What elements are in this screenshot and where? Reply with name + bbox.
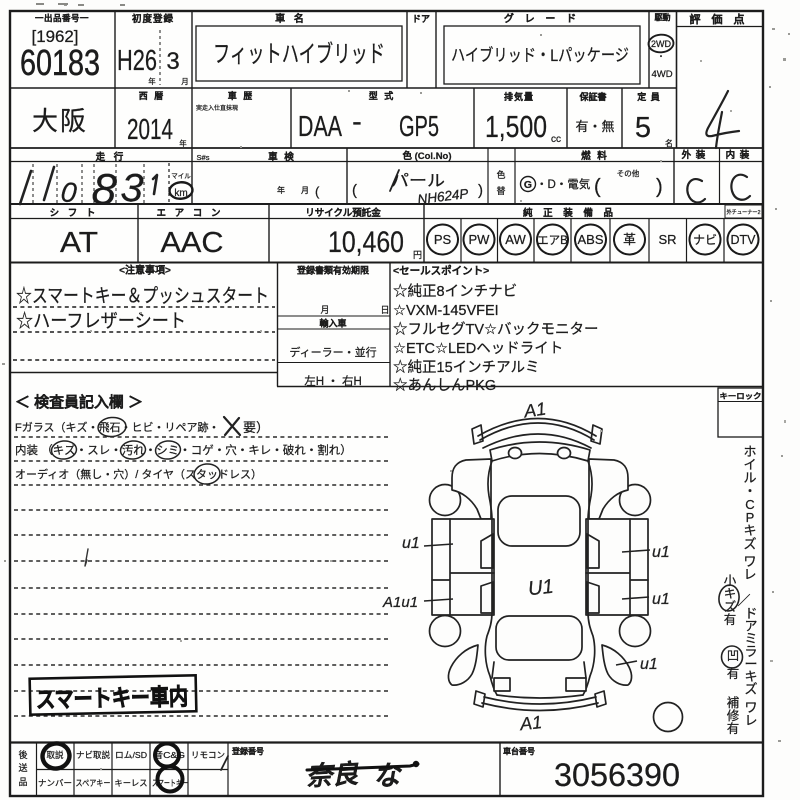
svg-text:実走入仕直抹現: 実走入仕直抹現	[196, 104, 238, 112]
svg-text:DTV: DTV	[731, 233, 757, 247]
svg-text:型 式: 型 式	[369, 90, 396, 101]
svg-text:取説: 取説	[46, 750, 64, 760]
svg-text:スペアキー: スペアキー	[76, 778, 111, 788]
svg-text:名: 名	[665, 138, 673, 148]
svg-text:☆フルセグTV☆バックモニター: ☆フルセグTV☆バックモニター	[393, 321, 599, 338]
svg-text:燃 料: 燃 料	[581, 150, 609, 162]
svg-text:日: 日	[380, 305, 389, 315]
svg-text:定 員: 定 員	[636, 91, 661, 102]
svg-text:S#s: S#s	[197, 153, 210, 162]
svg-text:3056390: 3056390	[554, 757, 680, 793]
svg-text:シ フ ト: シ フ ト	[50, 208, 99, 219]
svg-text:車 歴: 車 歴	[228, 90, 255, 101]
svg-text:Fガラス（キズ・飛石・ヒビ・リペア跡・: Fガラス（キズ・飛石・ヒビ・リペア跡・	[15, 420, 220, 434]
svg-text:ズ: ズ	[743, 536, 756, 551]
svg-text:ナンバー: ナンバー	[38, 778, 72, 788]
svg-text:リモコン: リモコン	[191, 750, 225, 760]
svg-text:☆VXM-145VFEI: ☆VXM-145VFEI	[393, 303, 499, 319]
svg-text:＜ 検査員記入欄 ＞: ＜ 検査員記入欄 ＞	[15, 393, 143, 411]
svg-text:G: G	[524, 179, 532, 191]
svg-text:ナビ取説: ナビ取説	[76, 750, 110, 760]
svg-text:後: 後	[18, 749, 27, 760]
svg-text:☆純正8インチナビ: ☆純正8インチナビ	[393, 283, 517, 300]
svg-text:10,460: 10,460	[328, 226, 404, 259]
svg-text:u1: u1	[640, 656, 658, 673]
svg-text:円: 円	[413, 250, 422, 260]
svg-text:有: 有	[727, 722, 740, 736]
svg-text:AW: AW	[505, 232, 526, 247]
svg-text:な: な	[372, 760, 404, 792]
svg-text:5: 5	[635, 112, 651, 144]
svg-text:レ: レ	[743, 567, 756, 582]
svg-text:-: -	[352, 106, 362, 138]
svg-text:外 装: 外 装	[681, 149, 707, 161]
svg-text:有: 有	[727, 667, 740, 681]
svg-text:☆ハーフレザーシート: ☆ハーフレザーシート	[16, 310, 186, 332]
svg-text:A1: A1	[518, 712, 543, 734]
svg-text:H26: H26	[117, 45, 157, 77]
svg-text:革: 革	[623, 232, 636, 247]
svg-text:3: 3	[119, 166, 144, 211]
svg-text:オーディオ（無し・穴）/ タイヤ（スタッドレス）: オーディオ（無し・穴）/ タイヤ（スタッドレス）	[15, 467, 262, 481]
svg-text:☆純正15インチアルミ: ☆純正15インチアルミ	[393, 359, 539, 376]
svg-text:AT: AT	[60, 227, 98, 259]
svg-text:送: 送	[18, 762, 27, 773]
svg-text:u1: u1	[652, 591, 670, 608]
svg-text:保証書: 保証書	[578, 91, 606, 102]
svg-text:レ: レ	[744, 713, 757, 728]
svg-text:フィットハイブリッド: フィットハイブリッド	[213, 41, 385, 68]
svg-text:☆スマートキー＆プッシュスタート: ☆スマートキー＆プッシュスタート	[16, 285, 269, 307]
svg-text:U1: U1	[527, 576, 555, 601]
svg-text:PW: PW	[469, 232, 491, 247]
svg-text:奈良: 奈良	[305, 759, 359, 792]
svg-text:(: (	[352, 182, 357, 199]
svg-text:・: ・	[657, 52, 665, 61]
svg-text:cc: cc	[551, 134, 561, 145]
svg-text:A1: A1	[522, 399, 548, 422]
svg-text:ハイブリッド・Lパッケージ: ハイブリッド・Lパッケージ	[451, 45, 629, 65]
svg-text:・D・電気: ・D・電気	[536, 177, 591, 191]
svg-text:車 検: 車 検	[268, 151, 296, 163]
svg-text:月: 月	[320, 305, 329, 315]
svg-text:ズ: ズ	[724, 599, 737, 614]
svg-text:ナビ: ナビ	[693, 233, 717, 247]
svg-text:リサイクル預託金: リサイクル預託金	[305, 207, 381, 219]
svg-text:外チューナー2: 外チューナー2	[727, 208, 761, 216]
svg-text:3: 3	[166, 48, 179, 75]
svg-text:60183: 60183	[20, 42, 100, 83]
svg-text:AAC: AAC	[161, 227, 224, 259]
svg-text:左H ・ 右H: 左H ・ 右H	[304, 374, 362, 388]
svg-text:u1: u1	[402, 535, 420, 552]
svg-text:エ ア コ ン: エ ア コ ン	[157, 208, 224, 219]
svg-text:スマートキー車内: スマートキー車内	[36, 683, 189, 712]
svg-text:キーロック: キーロック	[720, 391, 762, 401]
svg-text:登録番号: 登録番号	[231, 746, 264, 756]
svg-text:車台番号: 車台番号	[503, 746, 535, 756]
svg-text:u1: u1	[652, 544, 670, 561]
svg-text:修: 修	[727, 708, 740, 723]
svg-text:SR: SR	[658, 232, 676, 247]
svg-text:(: (	[594, 176, 601, 198]
svg-text:グ レ ー ド: グ レ ー ド	[504, 12, 580, 25]
svg-text:エアB: エアB	[537, 235, 568, 247]
svg-text:有・無: 有・無	[575, 119, 614, 134]
svg-text:排気量: 排気量	[504, 91, 534, 102]
svg-text:ロム/SD: ロム/SD	[115, 750, 147, 760]
svg-text:有: 有	[724, 613, 737, 627]
svg-text:): )	[478, 182, 483, 199]
svg-text:大阪: 大阪	[32, 106, 88, 136]
svg-text:駆動: 駆動	[654, 12, 671, 22]
svg-text:1,500: 1,500	[485, 109, 547, 144]
svg-text:補: 補	[727, 696, 740, 710]
svg-text:キーレス: キーレス	[115, 778, 148, 788]
svg-text:西 暦: 西 暦	[139, 91, 166, 101]
svg-text:色 (Col.No): 色 (Col.No)	[402, 150, 451, 162]
svg-text:2014: 2014	[127, 114, 173, 146]
svg-text:年: 年	[179, 138, 187, 148]
svg-text:): )	[656, 176, 663, 198]
svg-text:GP5: GP5	[399, 111, 439, 143]
svg-text:走 行: 走 行	[95, 151, 127, 163]
svg-text:評 価 点: 評 価 点	[689, 12, 748, 26]
svg-text:一出品番号一: 一出品番号一	[35, 13, 89, 23]
svg-text:DAA: DAA	[298, 111, 342, 143]
svg-text:PS: PS	[434, 232, 452, 247]
svg-text:<注意事項>: <注意事項>	[119, 264, 171, 277]
svg-text:☆あんしんPKG: ☆あんしんPKG	[393, 377, 496, 394]
svg-text:車 名: 車 名	[275, 12, 307, 25]
svg-text:その他: その他	[617, 168, 640, 178]
svg-text:ABS: ABS	[577, 232, 603, 247]
svg-text:初度登録: 初度登録	[132, 13, 174, 25]
svg-text:凹: 凹	[727, 649, 740, 663]
svg-text:(: (	[315, 184, 320, 199]
svg-text:要）: 要）	[243, 420, 269, 435]
svg-text:ディーラー・並行: ディーラー・並行	[289, 345, 376, 359]
svg-text:ドア: ドア	[412, 14, 430, 24]
svg-text:4WD: 4WD	[651, 69, 672, 80]
svg-text:<セールスポイント>: <セールスポイント>	[393, 264, 489, 277]
svg-text:2WD: 2WD	[651, 39, 672, 49]
svg-text:年: 年	[148, 76, 156, 86]
svg-text:キ: キ	[724, 587, 737, 601]
svg-text:月: 月	[181, 77, 189, 86]
svg-text:マイル: マイル	[171, 172, 191, 180]
svg-text:パール: パール	[391, 173, 445, 190]
svg-text:輸入車: 輸入車	[319, 318, 346, 329]
svg-text:純 正 装 備 品: 純 正 装 備 品	[523, 207, 617, 219]
svg-text:☆ETC☆LEDヘッドライト: ☆ETC☆LEDヘッドライト	[393, 341, 563, 357]
svg-text:品: 品	[18, 777, 27, 787]
svg-text:替: 替	[496, 185, 505, 196]
svg-text:A1u1: A1u1	[382, 594, 418, 611]
svg-text:月: 月	[301, 186, 309, 195]
svg-text:ズ: ズ	[744, 682, 757, 697]
svg-text:登録書類有効期限: 登録書類有効期限	[296, 265, 370, 276]
svg-text:色: 色	[496, 169, 505, 180]
svg-text:内 装: 内 装	[726, 149, 751, 161]
svg-text:内装 （キズ・スレ・汚れ・シミ・コゲ・穴・キレ・破れ・割れ）: 内装 （キズ・スレ・汚れ・シミ・コゲ・穴・キレ・破れ・割れ）	[15, 443, 352, 457]
svg-text:年: 年	[277, 185, 285, 195]
